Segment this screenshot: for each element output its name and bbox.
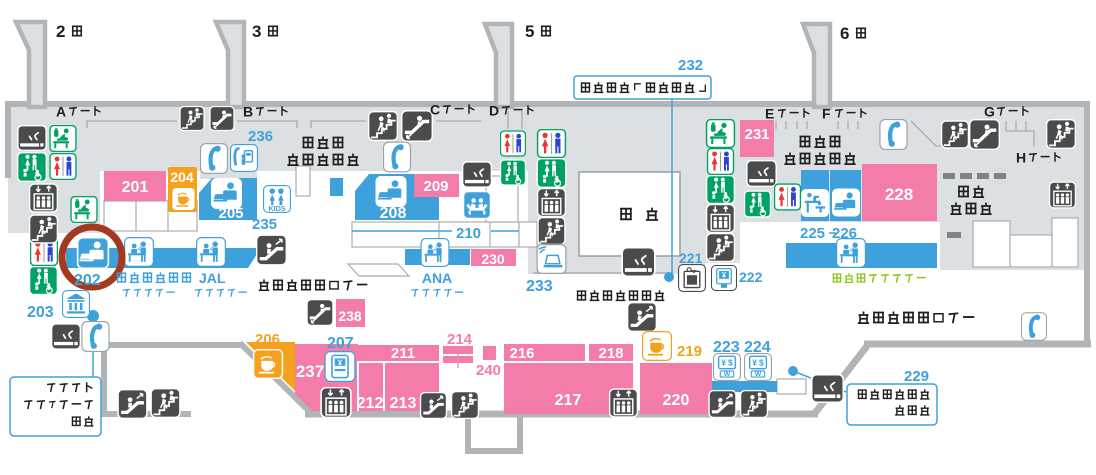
svg-text:3: 3 — [252, 22, 261, 41]
svg-text:218: 218 — [598, 345, 623, 362]
svg-text:225: 225 — [800, 225, 825, 242]
svg-text:205: 205 — [218, 205, 243, 222]
svg-text:232: 232 — [678, 57, 703, 74]
svg-text:233: 233 — [526, 278, 553, 295]
svg-text:208: 208 — [380, 205, 407, 222]
svg-text:ANA: ANA — [422, 270, 452, 286]
svg-text:214: 214 — [447, 331, 473, 348]
svg-text:222: 222 — [739, 269, 763, 285]
svg-text:211: 211 — [391, 345, 415, 362]
svg-text:212: 212 — [357, 395, 384, 412]
svg-text:238: 238 — [338, 308, 362, 324]
svg-text:6: 6 — [840, 24, 849, 43]
svg-text:236: 236 — [248, 128, 273, 145]
svg-text:5: 5 — [525, 22, 534, 41]
svg-text:237: 237 — [296, 362, 324, 381]
svg-text:203: 203 — [27, 304, 54, 321]
svg-text:216: 216 — [509, 345, 534, 362]
svg-text:204: 204 — [170, 169, 194, 185]
svg-text:224: 224 — [744, 339, 771, 356]
svg-text:H: H — [1016, 150, 1026, 166]
svg-text:B: B — [243, 104, 253, 120]
svg-text:220: 220 — [663, 392, 690, 409]
svg-text:2: 2 — [56, 22, 65, 41]
svg-text:207: 207 — [327, 335, 354, 352]
svg-text:235: 235 — [252, 216, 277, 233]
svg-text:G: G — [984, 104, 995, 120]
svg-text:223: 223 — [713, 339, 740, 356]
svg-text:226: 226 — [832, 225, 857, 242]
svg-text:201: 201 — [122, 179, 149, 196]
svg-text:202: 202 — [74, 272, 101, 289]
svg-text:231: 231 — [744, 126, 769, 143]
svg-text:A: A — [56, 104, 66, 120]
svg-text:230: 230 — [481, 251, 505, 267]
svg-text:209: 209 — [423, 178, 448, 195]
svg-text:E: E — [765, 106, 774, 122]
svg-text:206: 206 — [255, 331, 280, 348]
svg-text:210: 210 — [456, 225, 481, 242]
svg-text:213: 213 — [390, 395, 417, 412]
svg-text:229: 229 — [904, 368, 929, 385]
svg-text:JAL: JAL — [199, 270, 226, 286]
svg-text:215: 215 — [447, 368, 472, 385]
svg-text:F: F — [822, 106, 831, 122]
svg-text:D: D — [489, 103, 499, 119]
svg-text:221: 221 — [679, 250, 703, 266]
svg-text:C: C — [430, 102, 440, 118]
svg-text:217: 217 — [555, 392, 582, 409]
svg-text:228: 228 — [885, 185, 913, 204]
svg-text:219: 219 — [677, 343, 702, 360]
svg-text:240: 240 — [476, 362, 501, 379]
